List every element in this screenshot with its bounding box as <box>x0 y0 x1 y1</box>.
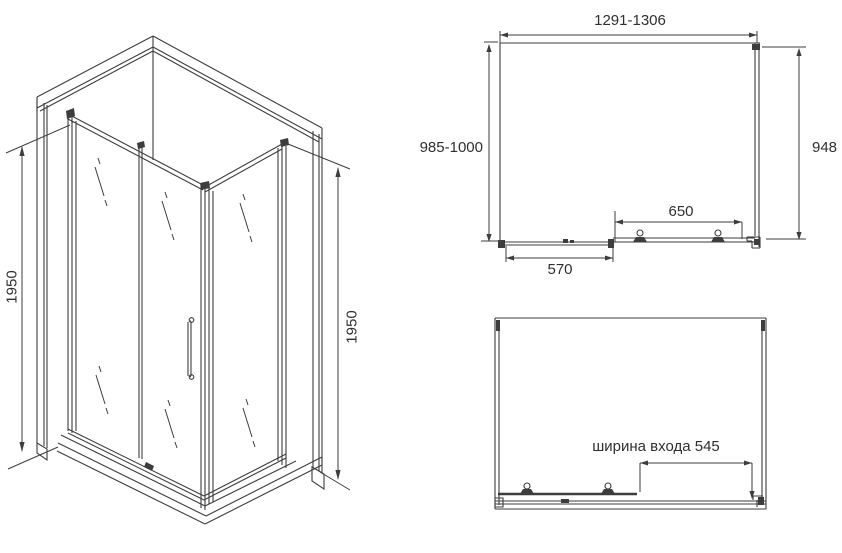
arrow-right-icon <box>749 33 757 38</box>
dimension-depth-left: 985-1000 <box>420 42 498 242</box>
arrow-right-icon <box>734 220 742 225</box>
arrow-up-icon <box>19 146 24 156</box>
dimension-label-height-right: 1950 <box>344 310 361 343</box>
door-guide-shoe <box>561 499 569 503</box>
handle-top-mount <box>189 318 194 323</box>
fixed-panel <box>500 242 613 245</box>
arrow-left-icon <box>500 33 508 38</box>
dimension-depth-right: 948 <box>762 47 837 240</box>
arrow-right-icon <box>744 461 752 466</box>
dimension-label-depth-left: 985-1000 <box>420 139 483 156</box>
shower-enclosure-technical-drawing: 1950 1950 <box>0 0 842 553</box>
dimension-label-entrance-width: ширина входа 545 <box>592 438 720 455</box>
roller-icon <box>633 230 647 242</box>
frame-corner-caps <box>66 108 289 190</box>
plan-view-bottom: ширина входа 545 <box>495 318 766 509</box>
dimension-label-depth-right: 948 <box>812 139 837 156</box>
door-bottom-guide <box>144 462 154 471</box>
panel-end-caps <box>498 239 614 248</box>
roller-icon <box>711 230 725 242</box>
dimension-label-fixed-panel: 570 <box>547 261 572 278</box>
enclosure-frame <box>68 114 286 510</box>
isometric-view: 1950 1950 <box>4 36 361 524</box>
plan-bottom-outline <box>495 318 766 509</box>
dimension-label-door-track: 650 <box>668 203 693 220</box>
drawing-svg: 1950 1950 <box>0 0 842 553</box>
corner-bracket-fill <box>754 239 759 245</box>
glass-reflection-marks <box>95 158 255 448</box>
arrow-down-icon <box>749 491 754 499</box>
arrow-right-icon <box>605 256 613 261</box>
dimension-height-right: 1950 <box>288 144 361 490</box>
dimension-entrance-width: ширина входа 545 <box>592 438 754 499</box>
wall-profile-mark <box>752 44 760 50</box>
top-frame <box>37 36 322 160</box>
wall-profile-marks <box>496 320 765 331</box>
dimension-label-height-left: 1950 <box>4 270 21 303</box>
bottom-track-right <box>204 454 322 524</box>
left-wall-foot <box>37 443 47 460</box>
right-wall-profile <box>313 131 322 473</box>
arrow-left-icon <box>506 256 514 261</box>
arrow-left-icon <box>615 220 623 225</box>
arrow-left-icon <box>640 461 648 466</box>
dimension-door-track: 650 <box>615 203 742 242</box>
bottom-track-left <box>57 429 206 524</box>
arrow-down-icon <box>335 470 340 480</box>
roller-icon <box>520 483 534 494</box>
door-handle <box>188 318 194 380</box>
arrow-down-icon <box>19 442 24 452</box>
arrow-up-icon <box>486 44 491 52</box>
left-wall-profile <box>37 97 47 448</box>
roller-icon <box>601 483 615 494</box>
dimension-label-overall-width: 1291-1306 <box>594 12 666 29</box>
plan-top-outline <box>500 43 760 247</box>
dimension-overall-width: 1291-1306 <box>500 12 757 43</box>
plan-view-top: 1291-1306 985-1000 948 650 <box>420 12 837 278</box>
arrow-up-icon <box>796 48 801 56</box>
arrow-up-icon <box>335 167 340 177</box>
bottom-track <box>495 501 766 509</box>
dimension-fixed-panel: 570 <box>506 246 613 278</box>
corner-bracket-fill <box>758 497 764 505</box>
